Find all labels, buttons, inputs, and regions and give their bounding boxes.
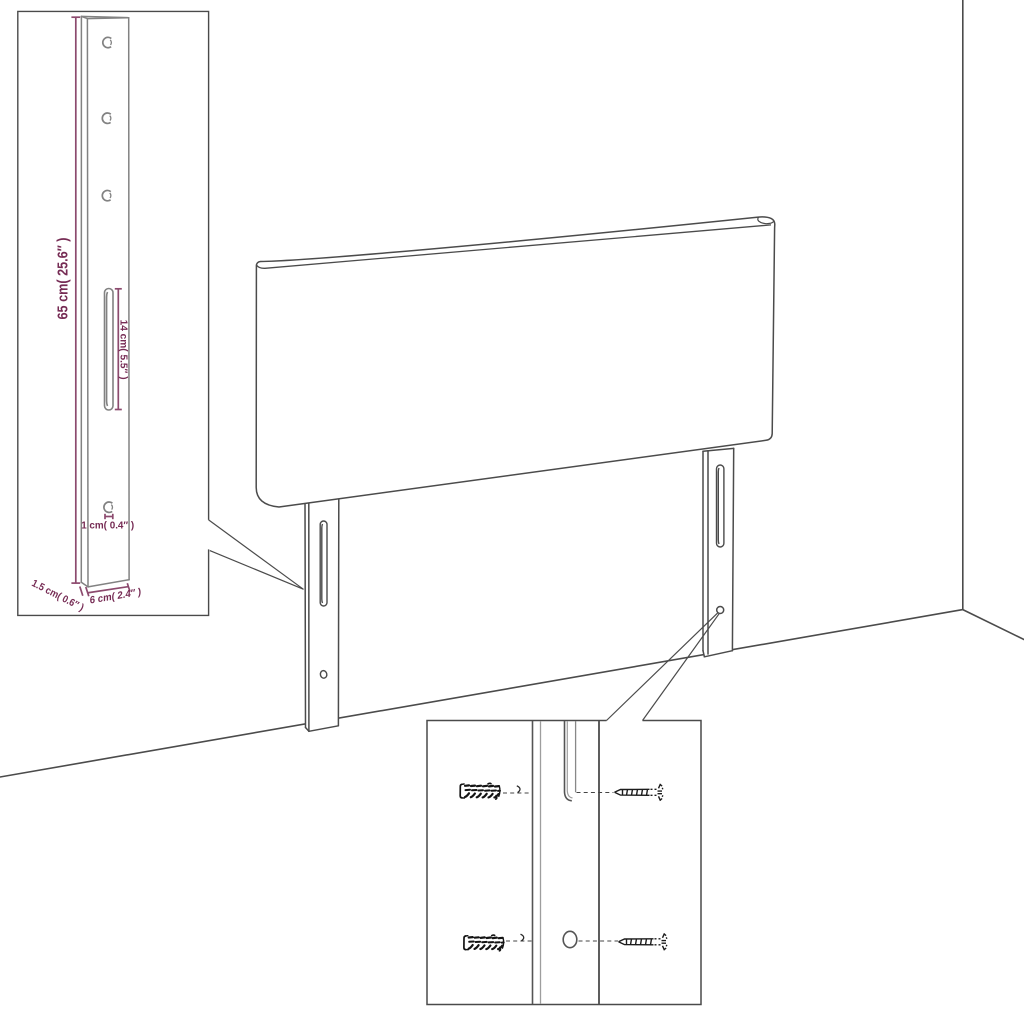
svg-text:1 cm( 0.4″ ): 1 cm( 0.4″ ) [81,520,134,531]
svg-text:65 cm( 25.6″ ): 65 cm( 25.6″ ) [55,238,72,320]
svg-text:14 cm( 5.5″ ): 14 cm( 5.5″ ) [118,320,130,380]
